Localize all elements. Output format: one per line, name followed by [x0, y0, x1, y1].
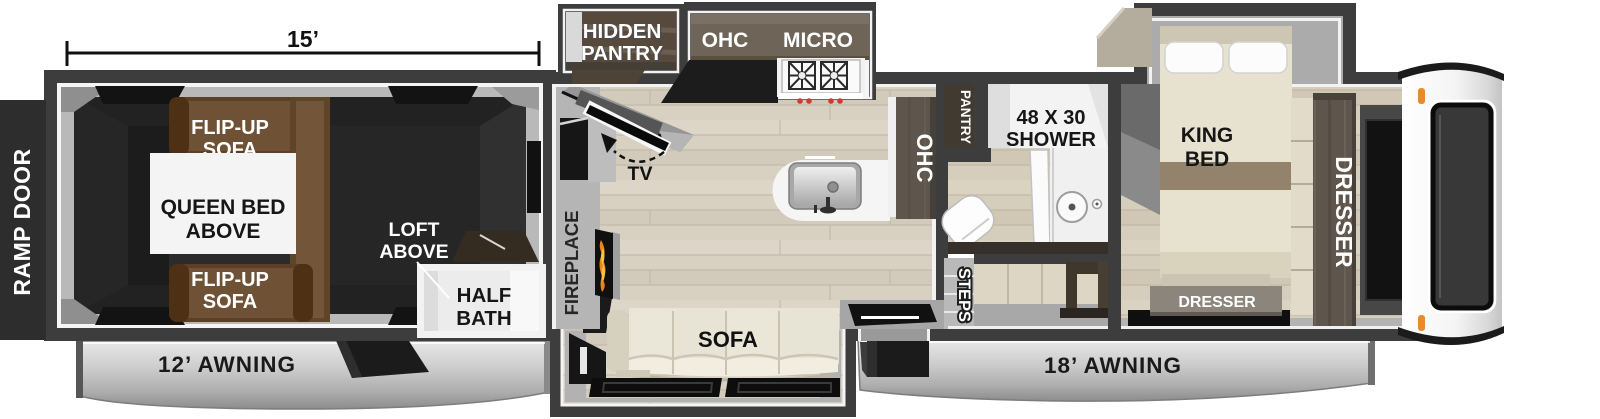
svg-text:ABOVE: ABOVE — [186, 220, 261, 243]
svg-text:BED: BED — [1185, 148, 1229, 171]
svg-text:KING: KING — [1181, 124, 1234, 147]
svg-text:ABOVE: ABOVE — [379, 241, 448, 263]
svg-text:FIREPLACE: FIREPLACE — [561, 211, 582, 316]
svg-text:RAMP DOOR: RAMP DOOR — [9, 148, 35, 295]
svg-text:LOFT: LOFT — [389, 219, 440, 241]
svg-text:18’ AWNING: 18’ AWNING — [1044, 353, 1182, 378]
svg-text:PANTRY: PANTRY — [958, 90, 973, 144]
svg-text:15’: 15’ — [287, 26, 319, 52]
svg-text:FLIP-UP: FLIP-UP — [191, 117, 269, 139]
svg-text:QUEEN BED: QUEEN BED — [161, 196, 286, 219]
svg-text:48 X 30: 48 X 30 — [1017, 107, 1086, 129]
svg-text:DRESSER: DRESSER — [1331, 156, 1357, 268]
svg-text:PANTRY: PANTRY — [581, 42, 663, 65]
svg-text:FLIP-UP: FLIP-UP — [191, 269, 269, 291]
svg-text:HIDDEN: HIDDEN — [583, 20, 662, 43]
svg-text:SHOWER: SHOWER — [1006, 129, 1097, 151]
svg-text:MICRO: MICRO — [783, 29, 853, 52]
svg-text:TV: TV — [628, 163, 653, 185]
svg-text:STEPS: STEPS — [955, 268, 973, 322]
svg-text:OHC: OHC — [912, 134, 937, 183]
svg-text:HALF: HALF — [457, 284, 512, 307]
svg-text:BATH: BATH — [456, 307, 511, 330]
svg-text:DRESSER: DRESSER — [1178, 294, 1256, 311]
svg-text:SOFA: SOFA — [203, 291, 257, 313]
svg-text:12’ AWNING: 12’ AWNING — [158, 352, 296, 377]
svg-text:OHC: OHC — [702, 29, 749, 52]
svg-text:SOFA: SOFA — [698, 327, 758, 352]
